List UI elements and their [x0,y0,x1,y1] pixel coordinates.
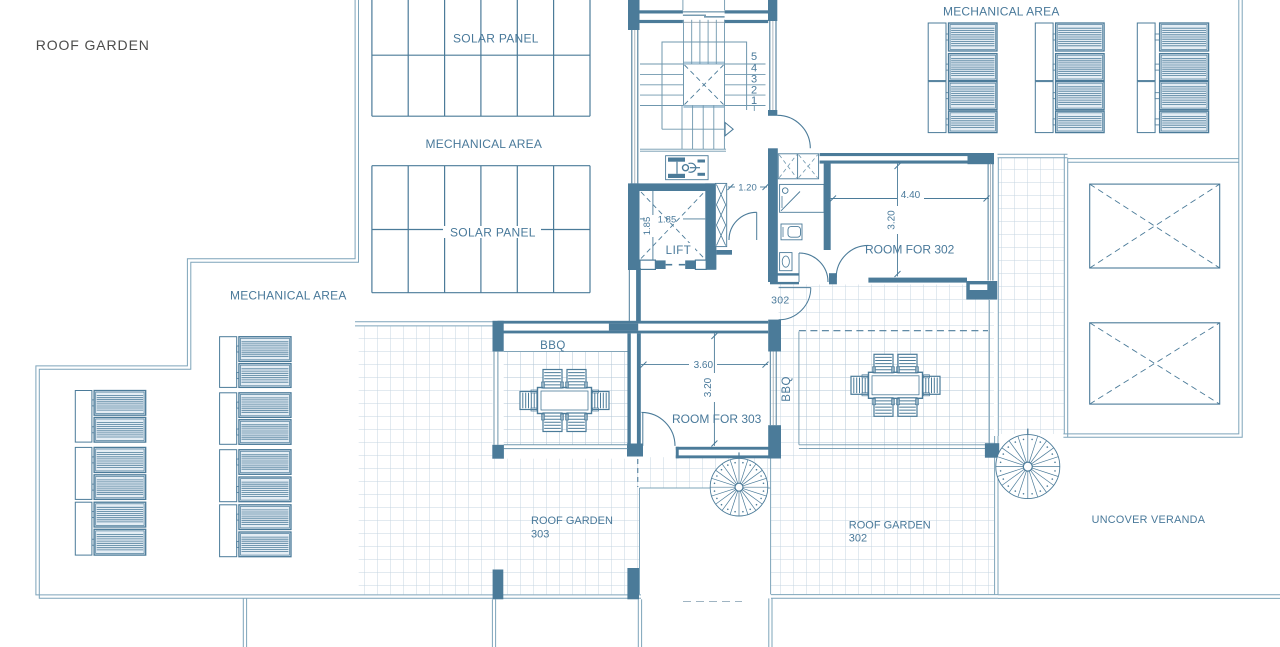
svg-text:MECHANICAL AREA: MECHANICAL AREA [943,4,1060,18]
svg-text:BBQ: BBQ [781,376,793,402]
svg-text:303: 303 [531,529,549,541]
svg-text:ROOM FOR 302: ROOM FOR 302 [865,243,955,257]
svg-text:MECHANICAL AREA: MECHANICAL AREA [426,137,543,151]
svg-text:3.20: 3.20 [886,210,897,230]
svg-text:SOLAR PANEL: SOLAR PANEL [453,32,539,46]
svg-text:1.20: 1.20 [738,182,757,193]
svg-text:LIFT: LIFT [666,245,692,257]
svg-text:ROOF GARDEN: ROOF GARDEN [531,515,613,527]
svg-text:ROOF GARDEN: ROOF GARDEN [849,519,931,531]
svg-text:5: 5 [751,51,757,63]
svg-text:ROOM FOR 303: ROOM FOR 303 [672,412,762,426]
svg-text:4.40: 4.40 [901,190,921,201]
svg-text:3.60: 3.60 [694,360,714,371]
svg-text:302: 302 [849,533,867,545]
svg-text:1.85: 1.85 [658,214,677,225]
svg-text:MECHANICAL AREA: MECHANICAL AREA [230,289,347,303]
svg-text:SOLAR PANEL: SOLAR PANEL [450,226,536,240]
svg-text:1.85: 1.85 [642,217,653,236]
svg-text:3.20: 3.20 [703,377,714,397]
svg-text:UNCOVER VERANDA: UNCOVER VERANDA [1092,514,1206,526]
svg-text:ROOF GARDEN: ROOF GARDEN [36,37,150,53]
svg-text:302: 302 [771,295,789,307]
svg-text:BBQ: BBQ [540,340,566,352]
svg-text:1: 1 [751,95,757,107]
